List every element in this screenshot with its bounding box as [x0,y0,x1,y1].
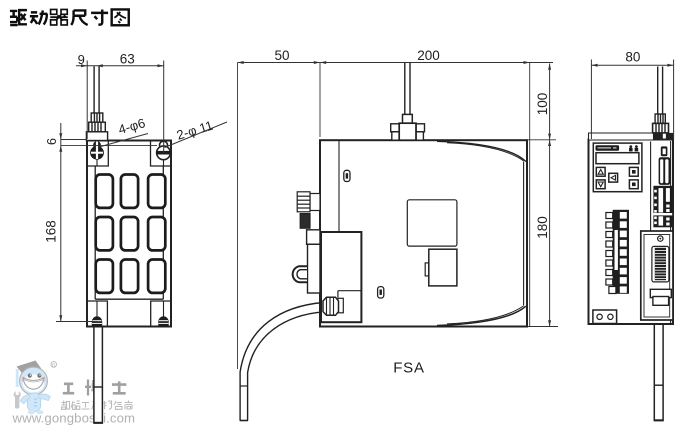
svg-text:200: 200 [417,48,440,63]
svg-text:80: 80 [625,50,640,65]
svg-text:50: 50 [274,48,289,63]
svg-text:FSA: FSA [393,360,425,377]
svg-text:180: 180 [535,216,550,239]
svg-text:100: 100 [535,93,550,116]
svg-text:9: 9 [78,52,85,67]
svg-text:6: 6 [45,138,59,145]
svg-text:63: 63 [120,52,135,67]
svg-text:168: 168 [44,220,59,243]
svg-text:www.gongboshi.com: www.gongboshi.com [12,411,136,426]
